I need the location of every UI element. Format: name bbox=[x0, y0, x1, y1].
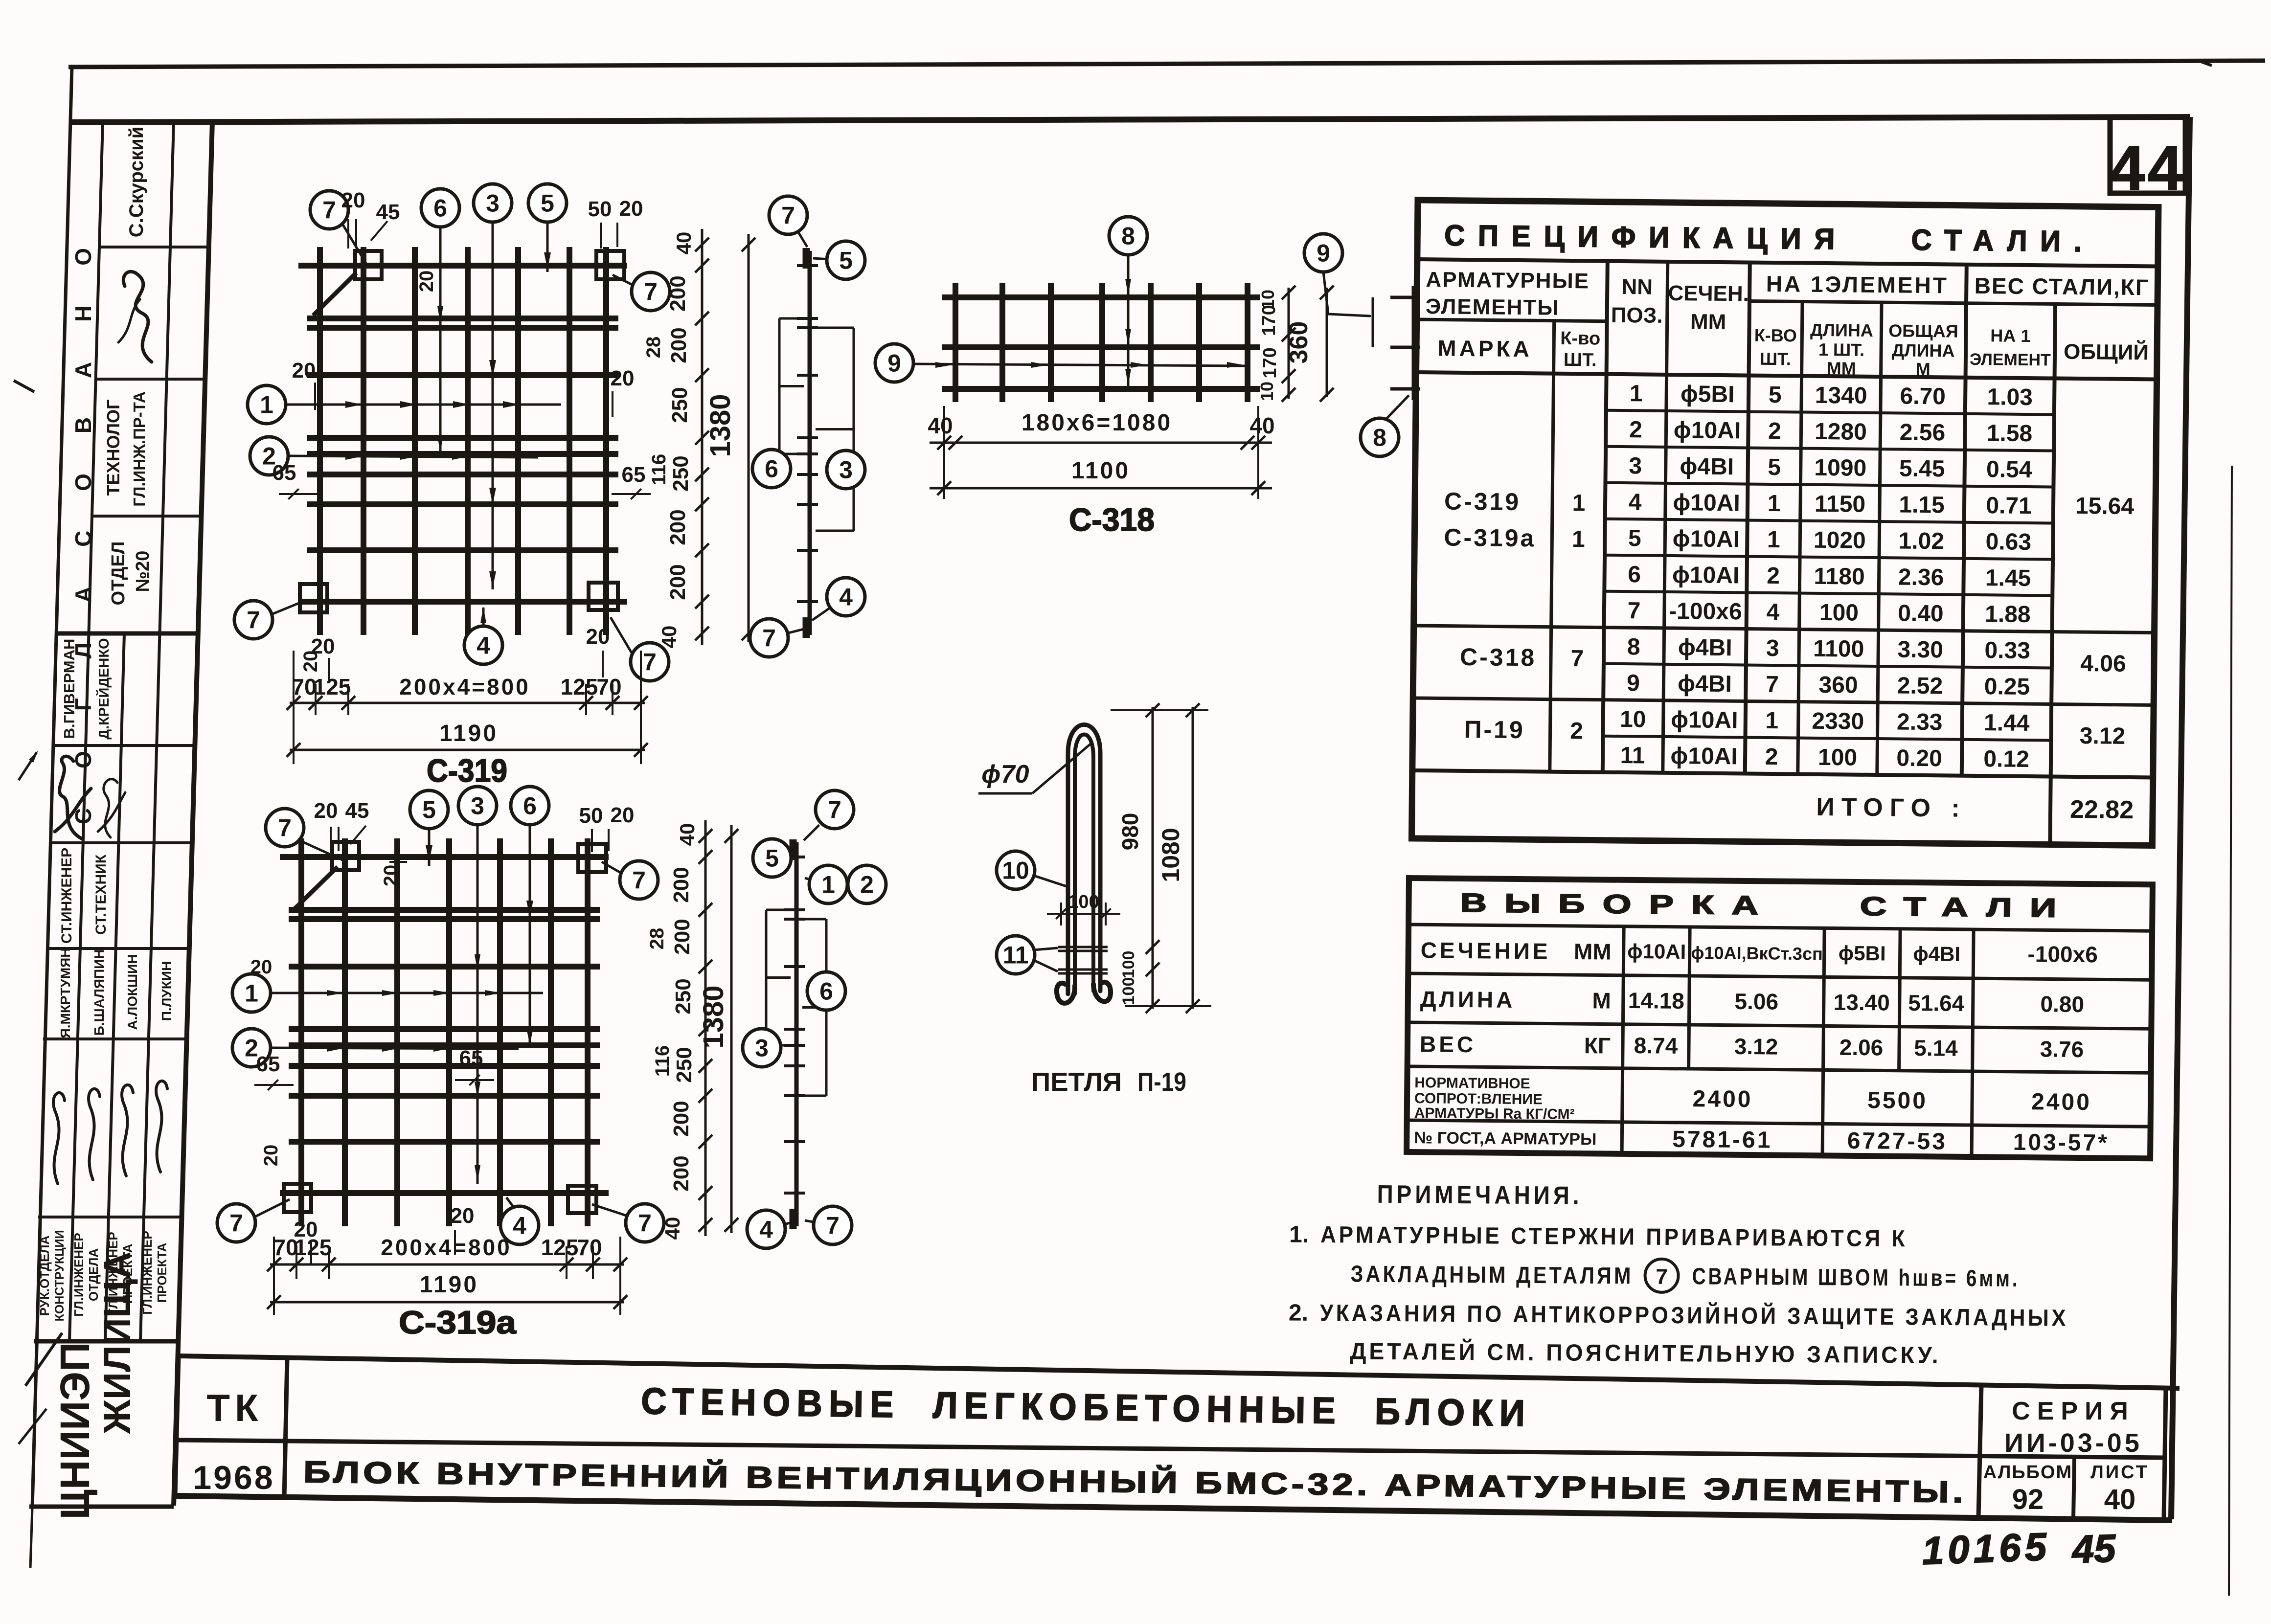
svg-text:125: 125 bbox=[561, 674, 598, 699]
svg-text:250: 250 bbox=[672, 1047, 696, 1083]
svg-text:7: 7 bbox=[1766, 672, 1779, 698]
svg-text:1: 1 bbox=[260, 391, 273, 419]
svg-text:2.33: 2.33 bbox=[1897, 709, 1943, 735]
svg-text:ГЛ.ИНЖЕНЕР: ГЛ.ИНЖЕНЕР bbox=[71, 1233, 86, 1316]
svg-text:С.Скурский: С.Скурский bbox=[126, 127, 147, 238]
svg-text:2.06: 2.06 bbox=[1840, 1035, 1884, 1060]
svg-text:1.45: 1.45 bbox=[1985, 565, 2031, 591]
svg-text:1.15: 1.15 bbox=[1899, 492, 1945, 518]
svg-text:1100: 1100 bbox=[1071, 458, 1130, 484]
svg-text:170: 170 bbox=[1259, 305, 1279, 336]
svg-text:ɸ10АI: ɸ10АI bbox=[1670, 743, 1738, 769]
svg-text:1150: 1150 bbox=[1815, 491, 1866, 518]
svg-text:4: 4 bbox=[477, 632, 490, 659]
svg-text:1 ШТ.: 1 ШТ. bbox=[1818, 339, 1865, 360]
svg-text:3.30: 3.30 bbox=[1897, 636, 1943, 663]
svg-text:4: 4 bbox=[839, 584, 853, 611]
svg-text:200: 200 bbox=[667, 327, 691, 363]
svg-text:6: 6 bbox=[433, 195, 447, 222]
svg-text:ЦНИИЭП: ЦНИИЭП bbox=[52, 1342, 98, 1520]
svg-text:П-19: П-19 bbox=[1137, 1067, 1186, 1097]
svg-text:125: 125 bbox=[295, 1235, 332, 1260]
svg-text:2330: 2330 bbox=[1812, 708, 1864, 735]
svg-text:0.12: 0.12 bbox=[1983, 746, 2029, 772]
svg-text:ШТ.: ШТ. bbox=[1564, 350, 1597, 371]
svg-text:51.64: 51.64 bbox=[1908, 990, 1965, 1016]
svg-text:6727-53: 6727-53 bbox=[1847, 1128, 1948, 1155]
svg-text:3.12: 3.12 bbox=[2080, 723, 2126, 749]
svg-text:4: 4 bbox=[513, 1212, 526, 1240]
svg-text:2.36: 2.36 bbox=[1898, 564, 1944, 590]
svg-text:ТЕХНОЛОГ: ТЕХНОЛОГ bbox=[103, 400, 123, 496]
svg-text:200: 200 bbox=[669, 1101, 693, 1136]
svg-text:СПЕЦИФИКАЦИЯ СТАЛИ.: СПЕЦИФИКАЦИЯ СТАЛИ. bbox=[1444, 219, 2095, 258]
svg-text:5: 5 bbox=[765, 845, 779, 872]
svg-text:ВЕС СТАЛИ,КГ: ВЕС СТАЛИ,КГ bbox=[1975, 273, 2150, 300]
svg-text:9: 9 bbox=[887, 350, 901, 377]
svg-text:250: 250 bbox=[668, 387, 692, 423]
svg-text:3: 3 bbox=[1766, 635, 1779, 661]
svg-text:4: 4 bbox=[1766, 599, 1780, 625]
svg-text:44: 44 bbox=[2110, 134, 2185, 203]
svg-text:7: 7 bbox=[762, 625, 776, 652]
svg-text:5.45: 5.45 bbox=[1899, 455, 1945, 482]
svg-text:СЕРИЯ: СЕРИЯ bbox=[2012, 1397, 2135, 1425]
svg-text:ПРИМЕЧАНИЯ.: ПРИМЕЧАНИЯ. bbox=[1377, 1180, 1583, 1210]
svg-text:АРМАТУРНЫЕ СТЕРЖНИ ПРИВАРИВА: АРМАТУРНЫЕ СТЕРЖНИ ПРИВАРИВАЮТСЯ К bbox=[1320, 1222, 1908, 1252]
svg-text:Б.ШАЛЯПИН: Б.ШАЛЯПИН bbox=[91, 949, 107, 1036]
svg-text:Д.КРЕЙДЕНКО: Д.КРЕЙДЕНКО bbox=[95, 638, 112, 739]
svg-text:А.ЛОКШИН: А.ЛОКШИН bbox=[125, 954, 140, 1030]
svg-text:СТ.ТЕХНИК: СТ.ТЕХНИК bbox=[93, 854, 109, 935]
svg-text:1.: 1. bbox=[1289, 1222, 1309, 1248]
svg-text:СЕЧЕНИЕ: СЕЧЕНИЕ bbox=[1420, 937, 1550, 964]
svg-text:2.52: 2.52 bbox=[1897, 673, 1943, 699]
svg-text:ДЛИНА: ДЛИНА bbox=[1420, 986, 1516, 1013]
svg-text:ИТОГО :: ИТОГО : bbox=[1816, 793, 1967, 823]
svg-text:28: 28 bbox=[643, 337, 664, 359]
svg-text:7: 7 bbox=[638, 1210, 652, 1237]
svg-text:10: 10 bbox=[1620, 706, 1646, 733]
svg-text:10: 10 bbox=[1257, 382, 1277, 401]
svg-text:ЖИЛИЩА: ЖИЛИЩА bbox=[95, 1251, 138, 1434]
svg-text:170: 170 bbox=[1260, 347, 1280, 378]
svg-text:2.56: 2.56 bbox=[1900, 419, 1946, 446]
svg-text:10: 10 bbox=[1002, 857, 1029, 884]
svg-text:ɸ5ВI: ɸ5ВI bbox=[1839, 942, 1886, 965]
svg-text:65: 65 bbox=[273, 461, 296, 485]
svg-text:5: 5 bbox=[541, 190, 554, 217]
svg-text:7: 7 bbox=[828, 796, 841, 824]
svg-text:7: 7 bbox=[247, 607, 260, 634]
svg-text:0.54: 0.54 bbox=[1986, 456, 2032, 483]
svg-text:№20: №20 bbox=[133, 551, 153, 592]
svg-text:0.63: 0.63 bbox=[1985, 529, 2031, 555]
svg-text:ɸ10АI: ɸ10АI bbox=[1671, 707, 1738, 733]
svg-text:125: 125 bbox=[541, 1235, 579, 1260]
svg-text:1.44: 1.44 bbox=[1984, 710, 2030, 736]
svg-text:С-319а: С-319а bbox=[1444, 524, 1536, 552]
svg-text:28: 28 bbox=[646, 928, 668, 950]
svg-text:100: 100 bbox=[1119, 977, 1138, 1005]
svg-text:ДЛИНА: ДЛИНА bbox=[1892, 340, 1955, 361]
svg-text:1080: 1080 bbox=[1157, 828, 1184, 882]
svg-text:8: 8 bbox=[1121, 223, 1135, 250]
svg-text:1: 1 bbox=[821, 871, 835, 899]
svg-text:70: 70 bbox=[596, 674, 621, 699]
svg-text:100: 100 bbox=[1119, 951, 1138, 979]
svg-text:М: М bbox=[1592, 988, 1611, 1013]
svg-text:2: 2 bbox=[860, 871, 874, 899]
svg-text:125: 125 bbox=[314, 674, 351, 699]
svg-text:С-318: С-318 bbox=[1069, 501, 1155, 538]
svg-text:1180: 1180 bbox=[1814, 564, 1865, 590]
svg-text:200: 200 bbox=[666, 275, 690, 311]
svg-text:2400: 2400 bbox=[2031, 1089, 2091, 1115]
svg-text:20: 20 bbox=[611, 366, 635, 390]
svg-text:7: 7 bbox=[826, 1212, 840, 1240]
svg-text:1190: 1190 bbox=[420, 1272, 478, 1298]
svg-text:5: 5 bbox=[422, 796, 436, 824]
svg-text:5: 5 bbox=[1768, 454, 1781, 480]
svg-text:К-ВО: К-ВО bbox=[1754, 325, 1797, 346]
svg-text:1280: 1280 bbox=[1815, 419, 1867, 445]
svg-text:15.64: 15.64 bbox=[2075, 493, 2135, 519]
svg-text:8.74: 8.74 bbox=[1634, 1033, 1678, 1059]
svg-text:ɸ10АI: ɸ10АI bbox=[1673, 490, 1740, 516]
svg-text:7: 7 bbox=[229, 1210, 243, 1237]
svg-text:ЭЛЕМЕНТ: ЭЛЕМЕНТ bbox=[1970, 350, 2051, 370]
svg-text:1090: 1090 bbox=[1814, 455, 1866, 481]
svg-text:20: 20 bbox=[250, 956, 273, 978]
svg-text:1: 1 bbox=[245, 980, 258, 1007]
svg-text:ВЫБОРКА СТАЛИ: ВЫБОРКА СТАЛИ bbox=[1460, 888, 2074, 923]
svg-text:70: 70 bbox=[577, 1235, 602, 1260]
svg-text:ЛИСТ: ЛИСТ bbox=[2090, 1462, 2149, 1483]
svg-text:116: 116 bbox=[652, 1045, 673, 1077]
svg-text:2: 2 bbox=[1765, 744, 1778, 770]
svg-text:6: 6 bbox=[819, 978, 833, 1005]
svg-text:ВЕС: ВЕС bbox=[1420, 1031, 1476, 1057]
svg-text:100: 100 bbox=[1068, 892, 1099, 912]
svg-text:22.82: 22.82 bbox=[2070, 795, 2134, 824]
svg-text:20: 20 bbox=[380, 865, 402, 887]
svg-text:ОБЩАЯ: ОБЩАЯ bbox=[1888, 320, 1958, 341]
svg-text:20: 20 bbox=[619, 197, 643, 221]
svg-text:6: 6 bbox=[523, 792, 537, 820]
svg-text:НА 1: НА 1 bbox=[1990, 325, 2030, 346]
svg-text:ММ: ММ bbox=[1827, 358, 1856, 379]
svg-text:К-во: К-во bbox=[1560, 328, 1600, 349]
svg-text:4: 4 bbox=[1628, 489, 1642, 515]
svg-text:-100х6: -100х6 bbox=[1669, 598, 1742, 625]
svg-text:КОНСТРУКЦИИ: КОНСТРУКЦИИ bbox=[53, 1230, 67, 1322]
svg-text:АРМАТУРЫ Rа КГ/СМ²: АРМАТУРЫ Rа КГ/СМ² bbox=[1414, 1105, 1575, 1123]
svg-text:20: 20 bbox=[260, 1145, 282, 1167]
svg-text:92: 92 bbox=[2012, 1484, 2044, 1515]
svg-text:7: 7 bbox=[1656, 1265, 1668, 1289]
svg-text:ɸ4ВI: ɸ4ВI bbox=[1678, 634, 1732, 661]
svg-text:5.06: 5.06 bbox=[1734, 989, 1778, 1015]
svg-text:200х4=800: 200х4=800 bbox=[381, 1235, 512, 1260]
svg-text:360: 360 bbox=[1818, 672, 1858, 699]
svg-text:ГЛ.ИНЖЕНЕР: ГЛ.ИНЖЕНЕР bbox=[140, 1231, 155, 1314]
svg-text:5: 5 bbox=[839, 247, 853, 274]
svg-text:ММ: ММ bbox=[1574, 939, 1612, 965]
svg-text:0.80: 0.80 bbox=[2040, 991, 2084, 1017]
svg-text:100: 100 bbox=[1819, 600, 1859, 626]
svg-text:7: 7 bbox=[1570, 646, 1584, 672]
svg-text:20: 20 bbox=[611, 803, 635, 827]
svg-text:ГЛ.ИНЖ.ПР-ТА: ГЛ.ИНЖ.ПР-ТА bbox=[130, 391, 148, 506]
svg-text:Я.МКРТУМЯН: Я.МКРТУМЯН bbox=[58, 948, 73, 1038]
svg-text:40: 40 bbox=[676, 823, 699, 846]
svg-text:45: 45 bbox=[345, 799, 369, 823]
svg-text:3: 3 bbox=[471, 792, 484, 820]
svg-text:2.: 2. bbox=[1289, 1300, 1308, 1326]
svg-text:4.06: 4.06 bbox=[2080, 651, 2126, 677]
svg-text:1.58: 1.58 bbox=[1987, 420, 2033, 447]
svg-text:2: 2 bbox=[1768, 418, 1781, 444]
svg-text:1: 1 bbox=[1765, 708, 1778, 734]
svg-text:20: 20 bbox=[311, 634, 335, 658]
svg-text:АРМАТУРНЫЕ: АРМАТУРНЫЕ bbox=[1426, 268, 1590, 293]
svg-text:11: 11 bbox=[1620, 743, 1645, 768]
svg-text:1.03: 1.03 bbox=[1987, 384, 2033, 410]
svg-text:5: 5 bbox=[1769, 382, 1782, 408]
svg-text:ДЛИНА: ДЛИНА bbox=[1810, 320, 1873, 340]
svg-text:П.ЛУКИН: П.ЛУКИН bbox=[159, 961, 174, 1021]
svg-text:ɸ10АI: ɸ10АI bbox=[1672, 562, 1740, 588]
svg-text:40: 40 bbox=[661, 1217, 684, 1240]
svg-text:ɸ4ВI: ɸ4ВI bbox=[1678, 671, 1732, 697]
svg-text:1: 1 bbox=[1572, 526, 1585, 552]
svg-text:ɸ70: ɸ70 bbox=[981, 760, 1029, 789]
svg-text:КГ: КГ bbox=[1584, 1033, 1611, 1058]
svg-text:ɸ10АI,ВкСт.3сп: ɸ10АI,ВкСт.3сп bbox=[1691, 943, 1823, 964]
svg-text:7: 7 bbox=[644, 278, 658, 306]
svg-text:С-319: С-319 bbox=[1444, 488, 1521, 516]
svg-text:4: 4 bbox=[759, 1216, 773, 1243]
svg-text:0.33: 0.33 bbox=[1984, 637, 2030, 664]
svg-text:NN: NN bbox=[1621, 275, 1653, 299]
svg-text:65: 65 bbox=[256, 1052, 280, 1076]
svg-text:6: 6 bbox=[1628, 562, 1641, 587]
svg-text:7: 7 bbox=[1627, 598, 1640, 624]
svg-text:5: 5 bbox=[1628, 525, 1641, 551]
svg-text:65: 65 bbox=[459, 1046, 483, 1070]
svg-text:200: 200 bbox=[669, 867, 693, 902]
svg-text:3: 3 bbox=[486, 190, 500, 217]
svg-text:ПОЗ.: ПОЗ. bbox=[1611, 303, 1663, 328]
svg-text:1100: 1100 bbox=[1813, 636, 1864, 662]
svg-text:7: 7 bbox=[632, 867, 646, 894]
svg-text:ПРОЕКТА: ПРОЕКТА bbox=[155, 1242, 169, 1303]
svg-text:ɸ4ВI: ɸ4ВI bbox=[1680, 453, 1734, 480]
svg-text:С-318: С-318 bbox=[1460, 643, 1537, 671]
svg-text:СТ.ИНЖЕНЕР: СТ.ИНЖЕНЕР bbox=[59, 848, 75, 944]
svg-text:6.70: 6.70 bbox=[1900, 383, 1946, 409]
svg-text:7: 7 bbox=[643, 649, 657, 676]
svg-text:200: 200 bbox=[666, 564, 690, 600]
svg-text:ТК: ТК bbox=[206, 1386, 263, 1429]
svg-text:ШТ.: ШТ. bbox=[1760, 349, 1792, 369]
svg-text:АЛЬБОМ: АЛЬБОМ bbox=[1983, 1462, 2072, 1483]
svg-text:20: 20 bbox=[341, 188, 365, 212]
svg-text:200: 200 bbox=[669, 1155, 693, 1191]
svg-text:0.40: 0.40 bbox=[1898, 600, 1944, 627]
svg-text:10165: 10165 bbox=[1921, 1525, 2051, 1573]
svg-text:200: 200 bbox=[666, 509, 690, 545]
svg-text:НА 1ЭЛЕМЕНТ: НА 1ЭЛЕМЕНТ bbox=[1766, 271, 1949, 298]
svg-text:5500: 5500 bbox=[1867, 1087, 1928, 1114]
svg-text:7: 7 bbox=[278, 814, 292, 842]
svg-text:С-319: С-319 bbox=[427, 752, 507, 789]
svg-text:П-19: П-19 bbox=[1464, 716, 1525, 744]
svg-text:ИИ-03-05: ИИ-03-05 bbox=[2004, 1428, 2142, 1458]
svg-text:20: 20 bbox=[451, 1204, 475, 1228]
svg-text:100: 100 bbox=[1818, 744, 1858, 771]
svg-text:ɸ10АI: ɸ10АI bbox=[1627, 940, 1686, 963]
svg-text:ММ: ММ bbox=[1690, 310, 1726, 334]
svg-text:200х4=800: 200х4=800 bbox=[399, 674, 530, 699]
svg-text:65: 65 bbox=[622, 463, 646, 487]
svg-text:250: 250 bbox=[671, 978, 695, 1014]
svg-text:116: 116 bbox=[648, 454, 670, 486]
svg-text:11: 11 bbox=[1003, 942, 1029, 969]
svg-text:ɸ4ВI: ɸ4ВI bbox=[1913, 942, 1960, 966]
svg-text:20: 20 bbox=[314, 799, 338, 823]
svg-text:3.76: 3.76 bbox=[2040, 1036, 2084, 1062]
svg-text:1190: 1190 bbox=[439, 721, 498, 746]
svg-text:7: 7 bbox=[322, 197, 336, 224]
svg-text:2400: 2400 bbox=[1692, 1086, 1752, 1112]
svg-text:9: 9 bbox=[1627, 670, 1640, 696]
svg-text:6: 6 bbox=[765, 455, 778, 483]
svg-text:СВАРНЫМ ШВОМ hшв= 6мм.: СВАРНЫМ ШВОМ hшв= 6мм. bbox=[1692, 1263, 2020, 1292]
svg-text:1: 1 bbox=[1767, 527, 1780, 553]
svg-text:МАРКА: МАРКА bbox=[1437, 335, 1532, 361]
svg-text:1340: 1340 bbox=[1815, 383, 1867, 409]
svg-text:50: 50 bbox=[579, 804, 603, 828]
svg-text:3: 3 bbox=[839, 456, 853, 484]
svg-text:20: 20 bbox=[292, 359, 316, 383]
svg-text:1020: 1020 bbox=[1814, 527, 1866, 554]
svg-text:ДЕТАЛЕЙ СМ. ПОЯСНИТЕЛЬНУЮ ЗА: ДЕТАЛЕЙ СМ. ПОЯСНИТЕЛЬНУЮ ЗАПИСКУ. bbox=[1350, 1337, 1941, 1368]
svg-text:ɸ5ВI: ɸ5ВI bbox=[1681, 381, 1735, 407]
svg-text:ЭЛЕМЕНТЫ: ЭЛЕМЕНТЫ bbox=[1426, 294, 1560, 320]
svg-text:45: 45 bbox=[2070, 1526, 2117, 1571]
svg-text:40: 40 bbox=[672, 232, 695, 255]
svg-text:200: 200 bbox=[670, 919, 694, 954]
svg-text:20: 20 bbox=[586, 625, 610, 649]
svg-text:С-319а: С-319а bbox=[399, 1304, 517, 1340]
svg-text:14.18: 14.18 bbox=[1628, 988, 1685, 1014]
svg-text:7: 7 bbox=[781, 202, 795, 229]
svg-text:М: М bbox=[1916, 359, 1930, 379]
svg-text:ɸ10АI: ɸ10АI bbox=[1674, 417, 1741, 444]
svg-text:№ ГОСТ,А АРМАТУРЫ: № ГОСТ,А АРМАТУРЫ bbox=[1414, 1128, 1596, 1149]
svg-text:ПЕТЛЯ: ПЕТЛЯ bbox=[1031, 1067, 1122, 1097]
svg-text:250: 250 bbox=[669, 455, 693, 491]
svg-text:13.40: 13.40 bbox=[1834, 990, 1890, 1015]
svg-text:3: 3 bbox=[1629, 453, 1642, 479]
svg-text:40: 40 bbox=[1249, 413, 1274, 438]
svg-text:1: 1 bbox=[1767, 491, 1780, 517]
svg-text:1380: 1380 bbox=[704, 394, 736, 457]
svg-text:2: 2 bbox=[1767, 563, 1780, 589]
svg-text:980: 980 bbox=[1117, 813, 1143, 851]
svg-text:ОБЩИЙ: ОБЩИЙ bbox=[2064, 339, 2149, 365]
svg-text:0.20: 0.20 bbox=[1896, 745, 1942, 771]
svg-text:1380: 1380 bbox=[698, 985, 729, 1048]
svg-text:1.02: 1.02 bbox=[1898, 528, 1944, 554]
svg-text:20: 20 bbox=[416, 271, 437, 293]
svg-text:ɸ10АI: ɸ10АI bbox=[1672, 526, 1740, 552]
svg-text:103-57*: 103-57* bbox=[2013, 1129, 2110, 1156]
svg-text:1.88: 1.88 bbox=[1985, 601, 2031, 628]
svg-text:0.71: 0.71 bbox=[1986, 493, 2032, 519]
svg-text:9: 9 bbox=[1317, 240, 1330, 267]
svg-text:5781-61: 5781-61 bbox=[1672, 1127, 1772, 1153]
svg-text:360: 360 bbox=[1285, 321, 1313, 364]
svg-text:2: 2 bbox=[1570, 718, 1583, 744]
svg-text:45: 45 bbox=[376, 200, 400, 224]
svg-text:ОТДЕЛ: ОТДЕЛ bbox=[108, 541, 129, 606]
svg-text:40: 40 bbox=[928, 413, 953, 438]
svg-text:3: 3 bbox=[755, 1035, 769, 1062]
svg-text:2: 2 bbox=[1629, 417, 1642, 443]
svg-text:НОРМАТИВНОЕ: НОРМАТИВНОЕ bbox=[1414, 1075, 1530, 1092]
svg-text:1: 1 bbox=[1572, 490, 1585, 516]
svg-text:8: 8 bbox=[1627, 634, 1640, 660]
svg-text:СЕЧЕН.: СЕЧЕН. bbox=[1668, 281, 1749, 306]
svg-text:40: 40 bbox=[2104, 1484, 2136, 1515]
svg-text:1: 1 bbox=[1630, 381, 1643, 406]
svg-text:-100х6: -100х6 bbox=[2027, 941, 2098, 967]
svg-text:40: 40 bbox=[658, 626, 681, 649]
svg-text:180х6=1080: 180х6=1080 bbox=[1022, 410, 1172, 436]
svg-text:1968: 1968 bbox=[193, 1459, 274, 1496]
svg-text:0.25: 0.25 bbox=[1984, 674, 2030, 700]
svg-text:8: 8 bbox=[1373, 424, 1386, 451]
svg-text:3.12: 3.12 bbox=[1734, 1034, 1778, 1060]
svg-text:5.14: 5.14 bbox=[1914, 1035, 1958, 1061]
svg-text:РУК.ОТДЕЛА: РУК.ОТДЕЛА bbox=[37, 1235, 52, 1316]
svg-text:50: 50 bbox=[588, 197, 612, 221]
svg-text:ЗАКЛАДНЫМ ДЕТАЛЯМ: ЗАКЛАДНЫМ ДЕТАЛЯМ bbox=[1350, 1261, 1633, 1289]
svg-text:В.ГИВЕРМАН: В.ГИВЕРМАН bbox=[61, 639, 78, 739]
